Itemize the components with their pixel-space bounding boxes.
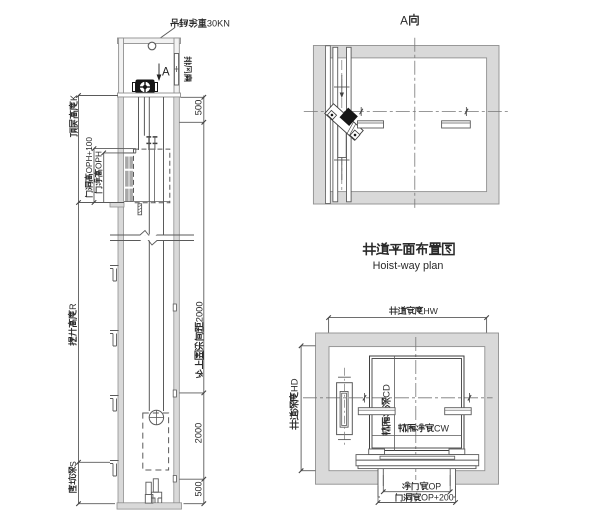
svg-text:30KN: 30KN: [207, 18, 230, 28]
svg-text:HW: HW: [424, 306, 439, 316]
svg-text:500: 500: [194, 100, 205, 116]
svg-text:A: A: [162, 67, 170, 79]
svg-text:CD: CD: [382, 384, 393, 398]
svg-text:K: K: [69, 95, 79, 101]
svg-text:OPH+100: OPH+100: [85, 137, 94, 174]
svg-text:500: 500: [193, 481, 203, 496]
svg-text:OP+200: OP+200: [421, 493, 454, 503]
svg-text:OPH: OPH: [93, 151, 103, 169]
svg-text:2000: 2000: [194, 301, 205, 322]
svg-text:OP: OP: [428, 481, 441, 491]
svg-text:2000: 2000: [193, 423, 203, 444]
svg-text:R: R: [68, 303, 78, 309]
svg-text:Hoist-way plan: Hoist-way plan: [373, 260, 444, 272]
svg-text:S: S: [68, 461, 78, 467]
svg-text:HD: HD: [289, 378, 300, 392]
svg-text:A: A: [400, 13, 408, 27]
svg-text:CW: CW: [434, 423, 449, 433]
